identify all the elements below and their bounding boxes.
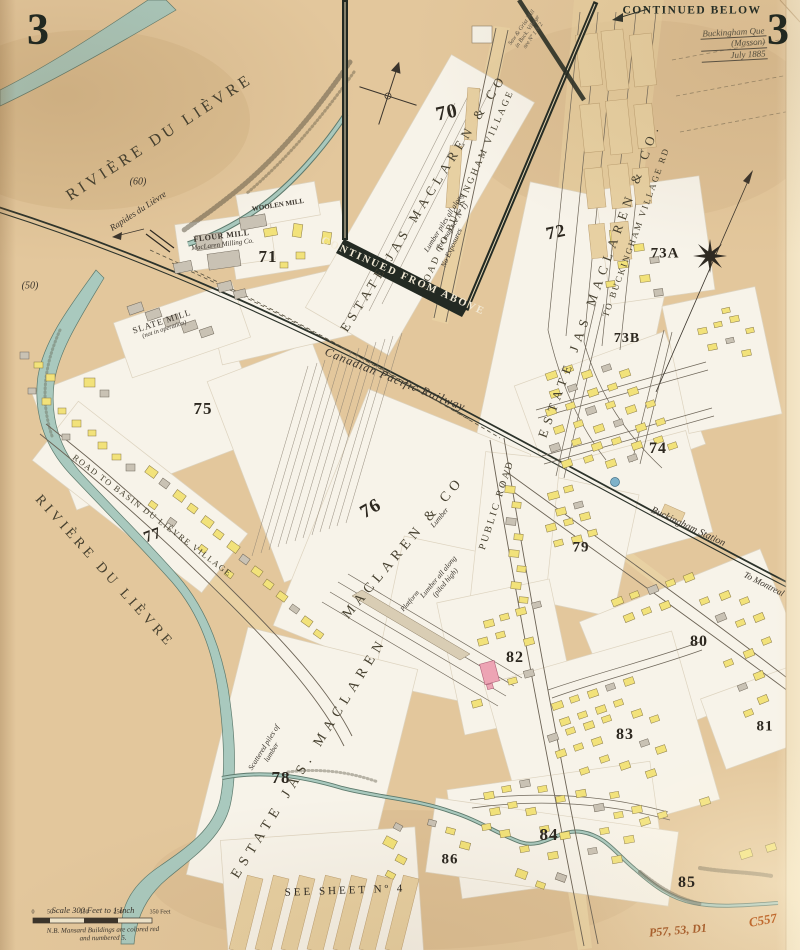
block-number-81: 81 xyxy=(757,718,774,735)
river-label-upper: RIVIÈRE DU LIÈVRE xyxy=(63,71,257,206)
public-road-label: PUBLIC ROAD xyxy=(477,459,517,552)
block-number-74: 74 xyxy=(649,440,667,458)
block-number-76: 76 xyxy=(356,494,385,523)
scale-tick: 350 Feet xyxy=(150,910,171,917)
handwritten-note: Saw & Grist Mill in Buck. Village see Nº… xyxy=(508,9,549,55)
sheet-number-right: 3 xyxy=(767,5,789,56)
platform-label: Platform xyxy=(399,589,421,613)
block-number-80: 80 xyxy=(690,633,708,651)
archive-ref-2: C557 xyxy=(748,911,778,931)
station-label: Buckingham Station xyxy=(649,505,727,550)
block-number-83: 83 xyxy=(616,726,634,744)
rapids-label: Rapides du Lièvre xyxy=(108,189,168,233)
woolen-mill-label: WOOLEN MILL xyxy=(251,197,304,213)
block-number-73a: 73A xyxy=(651,245,680,262)
block-number-85: 85 xyxy=(678,874,696,892)
scale-tick: 150 xyxy=(80,910,89,917)
elevation-50: (50) xyxy=(22,280,39,292)
mansard-note: N.B. Mansard Buildings are colored red a… xyxy=(47,925,160,943)
map-labels: 3 3 CONTINUED BELOW Buckingham Que (Mass… xyxy=(0,0,800,950)
estate-label-72: ESTATE JAS MACLAREN & CO. xyxy=(536,120,665,440)
elevation-60: (60) xyxy=(130,176,147,188)
to-montreal-label: To Montreal xyxy=(742,569,786,598)
stamp-line-3: July 1885 xyxy=(701,48,768,63)
block-number-79: 79 xyxy=(573,539,590,556)
scale-tick: 250 xyxy=(114,910,123,917)
see-sheet-note: SEE SHEET Nº 4 xyxy=(284,883,405,900)
block-number-82: 82 xyxy=(506,649,524,667)
block-number-73b: 73B xyxy=(614,331,640,347)
block-number-86: 86 xyxy=(442,851,459,868)
block-number-72: 72 xyxy=(544,220,568,244)
scale-tick: 0 xyxy=(32,910,35,917)
fire-insurance-map-sheet: 3 3 CONTINUED BELOW Buckingham Que (Mass… xyxy=(0,0,800,950)
archive-ref-1: P57, 53, D1 xyxy=(649,922,708,941)
date-stamp: Buckingham Que (Masson) July 1885 xyxy=(700,25,768,62)
estate-label-70: ESTATE JAS MACLAREN & CO xyxy=(338,71,511,335)
sheet-number-left: 3 xyxy=(27,5,49,56)
lumber-all-along-note: Lumber all along (piled high) xyxy=(419,555,466,606)
block-number-70: 70 xyxy=(434,99,460,126)
flour-mill-label: FLOUR MILL MacLaren Milling Co. xyxy=(190,228,255,253)
slate-mill-label: SLATE MILL (not in operation) xyxy=(131,307,195,343)
block-number-71: 71 xyxy=(259,247,278,267)
cpr-railway-label: Canadian Pacific Railway xyxy=(323,345,468,414)
scale-tick: 50 xyxy=(47,910,53,917)
block-number-84: 84 xyxy=(540,825,559,845)
continued-below-label: CONTINUED BELOW xyxy=(622,4,761,17)
block-number-75: 75 xyxy=(194,399,213,419)
